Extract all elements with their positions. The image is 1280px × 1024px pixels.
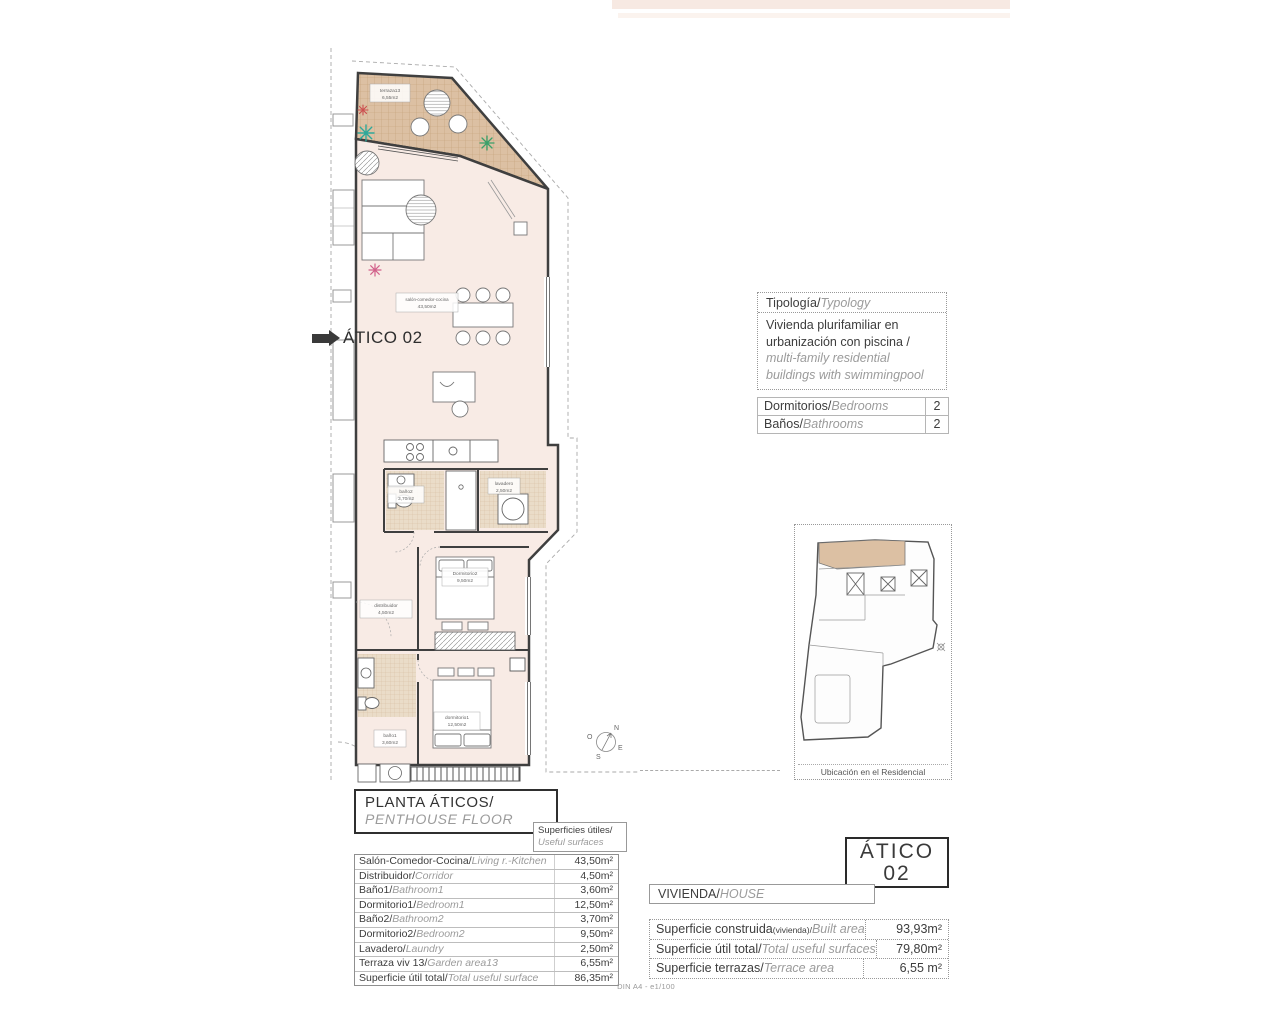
label-dormitorio2: Dormitorio2 bbox=[453, 571, 478, 577]
label-bano2-area: 3,70m2 bbox=[398, 496, 414, 502]
callout-label: ÁTICO 02 bbox=[343, 328, 423, 348]
table-row: Baño2/Bathroom23,70m² bbox=[355, 912, 618, 927]
compass-s: S bbox=[596, 754, 601, 761]
label-dormitorio2-area: 9,50m2 bbox=[457, 578, 473, 584]
balcony-railing bbox=[358, 764, 520, 782]
row-value: 6,55m² bbox=[554, 957, 618, 971]
typology-card: Tipología/Typology Vivienda plurifamilia… bbox=[757, 292, 947, 390]
sitemap-caption: Ubicación en el Residencial bbox=[798, 764, 948, 777]
row-value: 2,50m² bbox=[554, 943, 618, 957]
row-value: 93,93m² bbox=[865, 920, 948, 939]
label-bano1-area: 3,60m2 bbox=[382, 740, 398, 746]
counts-table: Dormitorios/Bedrooms 2 Baños/Bathrooms 2 bbox=[757, 397, 949, 434]
unit-number-box: ÁTICO 02 bbox=[845, 837, 949, 888]
vivienda-en: HOUSE bbox=[720, 887, 764, 901]
label-terraza-area: 6,55m2 bbox=[382, 95, 398, 101]
typology-header: Tipología/Typology bbox=[758, 293, 946, 313]
callout-atico-02: ÁTICO 02 bbox=[312, 328, 423, 348]
table-row: Superficie construida(vivienda)/Built ar… bbox=[650, 920, 948, 939]
row-value: 3,60m² bbox=[554, 884, 618, 898]
vivienda-header: VIVIENDA/HOUSE bbox=[649, 884, 875, 904]
label-distribuidor-area: 4,50m2 bbox=[378, 610, 394, 616]
table-row: Salón-Comedor-Cocina/Living r.-Kitchen43… bbox=[355, 855, 618, 869]
typology-title-en: Typology bbox=[820, 296, 870, 310]
table-row: Superficie útil total/Total useful surfa… bbox=[650, 939, 948, 959]
compass-n: N bbox=[614, 725, 619, 732]
useful-header-es: Superficies útiles/ bbox=[538, 825, 622, 837]
boundary-dash-continuation bbox=[640, 770, 780, 771]
typology-body-en: multi-family residential buildings with … bbox=[766, 351, 924, 382]
label-dormitorio1: dormitorio1 bbox=[445, 715, 469, 721]
decor-bar-top bbox=[612, 0, 1010, 9]
row-value: 79,80m² bbox=[876, 940, 948, 959]
table-row: Dormitorio1/Bedroom112,50m² bbox=[355, 898, 618, 913]
sitemap-plan bbox=[795, 525, 951, 755]
unit-number-line2: 02 bbox=[883, 863, 910, 884]
row-value: 43,50m² bbox=[554, 855, 618, 869]
compass-e: E bbox=[618, 745, 623, 752]
floor-title-es: PLANTA ÁTICOS/ bbox=[365, 794, 547, 811]
table-row: Lavadero/Laundry2,50m² bbox=[355, 942, 618, 957]
counts-row-bathrooms: Baños/Bathrooms 2 bbox=[758, 415, 948, 433]
arrow-right-icon-head bbox=[329, 330, 340, 346]
table-row: Distribuidor/Corridor4,50m² bbox=[355, 869, 618, 884]
page-root: { "callout": {"label": "ÁTICO 02"}, "pla… bbox=[0, 0, 1280, 1024]
table-row: Terraza viv 13/Garden area136,55m² bbox=[355, 956, 618, 971]
decor-bar-top-2 bbox=[618, 13, 1010, 18]
useful-surfaces-table: Salón-Comedor-Cocina/Living r.-Kitchen43… bbox=[354, 854, 619, 986]
vivienda-es: VIVIENDA/ bbox=[658, 887, 720, 901]
label-terraza: terraza13 bbox=[380, 88, 401, 94]
typology-body-es: Vivienda plurifamiliar en urbanización c… bbox=[766, 318, 910, 349]
bathroom1 bbox=[358, 654, 416, 717]
label-bano2: baño2 bbox=[399, 489, 413, 495]
row-value: 12,50m² bbox=[554, 899, 618, 913]
arrow-right-icon bbox=[312, 334, 329, 343]
bathrooms-label-en: Bathrooms bbox=[803, 417, 863, 431]
typology-body: Vivienda plurifamiliar en urbanización c… bbox=[758, 313, 946, 389]
label-dormitorio1-area: 12,50m2 bbox=[448, 722, 467, 728]
row-value: 9,50m² bbox=[554, 928, 618, 942]
compass-o: O bbox=[587, 734, 593, 741]
label-living: salón-comedor-cocina bbox=[405, 297, 449, 302]
label-bano1: baño1 bbox=[383, 733, 397, 739]
footer-scale-note: DIN A4 - e1/100 bbox=[556, 982, 736, 991]
sitemap-card: Ubicación en el Residencial bbox=[794, 524, 952, 780]
useful-surfaces-header: Superficies útiles/ Useful surfaces bbox=[533, 822, 627, 852]
label-lavadero-area: 2,50m2 bbox=[496, 488, 512, 494]
bathrooms-count: 2 bbox=[925, 416, 948, 433]
typology-title-es: Tipología/ bbox=[766, 296, 820, 310]
bedrooms-label-en: Bedrooms bbox=[831, 399, 888, 413]
row-value: 3,70m² bbox=[554, 913, 618, 927]
table-row: Superficie terrazas/Terrace area 6,55 m² bbox=[650, 958, 948, 978]
compass-rose: N E S O bbox=[587, 725, 623, 761]
useful-header-en: Useful surfaces bbox=[538, 837, 622, 849]
bedrooms-label-es: Dormitorios/ bbox=[764, 399, 831, 413]
unit-number-line1: ÁTICO bbox=[860, 841, 934, 862]
bathrooms-label-es: Baños/ bbox=[764, 417, 803, 431]
table-row: Baño1/Bathroom13,60m² bbox=[355, 883, 618, 898]
row-value: 4,50m² bbox=[554, 870, 618, 884]
floor-title-box: PLANTA ÁTICOS/ PENTHOUSE FLOOR bbox=[354, 789, 558, 834]
counts-row-bedrooms: Dormitorios/Bedrooms 2 bbox=[758, 398, 948, 415]
label-distribuidor: distribuidor bbox=[374, 603, 398, 609]
floor-plan: N E S O terraza13 6,55m2 salón-comedor-c… bbox=[318, 42, 638, 787]
row-value: 6,55 m² bbox=[863, 959, 948, 978]
label-lavadero: lavadero bbox=[495, 481, 514, 487]
floor-title-en: PENTHOUSE FLOOR bbox=[365, 811, 547, 827]
kitchen-counter bbox=[384, 440, 498, 462]
label-living-area: 43,50m2 bbox=[418, 304, 437, 310]
summary-table: Superficie construida(vivienda)/Built ar… bbox=[649, 919, 949, 979]
table-row: Dormitorio2/Bedroom29,50m² bbox=[355, 927, 618, 942]
bedrooms-count: 2 bbox=[925, 398, 948, 415]
neighbour-walls bbox=[333, 114, 354, 598]
